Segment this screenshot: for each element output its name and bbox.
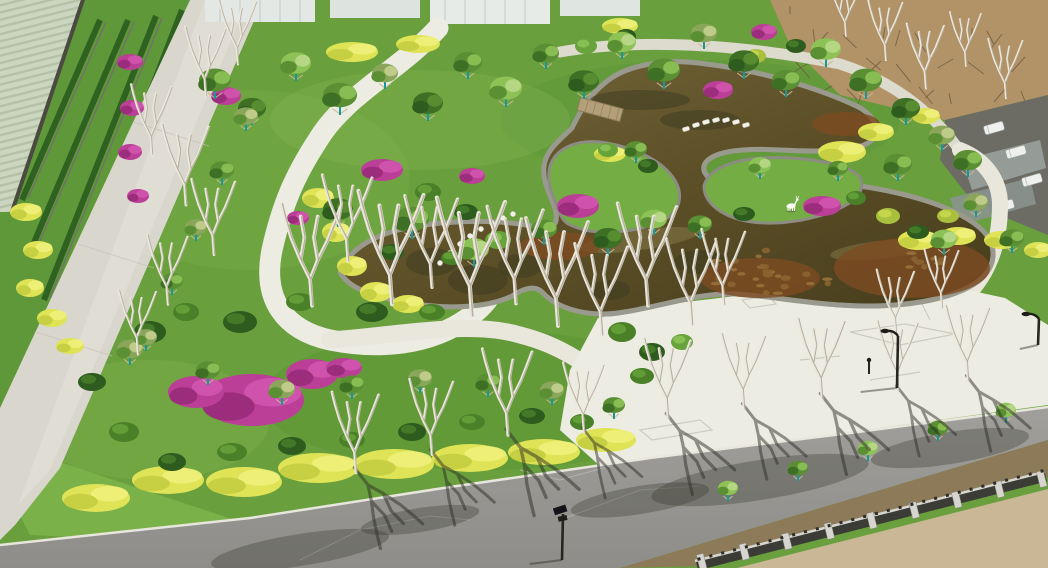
shrub-highlight: [848, 192, 859, 199]
tree-canopy: [198, 78, 216, 91]
tree-canopy: [975, 195, 987, 205]
scene-svg: [0, 0, 1048, 568]
building: [430, 0, 550, 24]
tree-canopy: [419, 371, 431, 381]
tree-canopy: [195, 368, 208, 378]
yellow-hedge-dark: [859, 129, 877, 139]
tree-canopy: [489, 86, 507, 99]
yellow-hedge-dark: [17, 285, 31, 295]
tree-canopy: [453, 60, 468, 72]
tree-canopy: [928, 133, 942, 144]
yellow-hedge-dark: [338, 263, 353, 274]
tree-canopy: [963, 200, 976, 210]
tree-canopy: [728, 59, 745, 72]
tree-canopy: [699, 217, 711, 227]
magenta-flower-bed-dark: [288, 216, 299, 224]
tree-canopy: [339, 382, 352, 392]
lily-pad: [780, 284, 788, 290]
lily-pad: [914, 259, 924, 265]
tree-canopy: [532, 51, 546, 62]
shrub-highlight: [600, 144, 611, 151]
tree-canopy: [663, 61, 679, 74]
tree-canopy: [505, 79, 521, 92]
tree-canopy: [703, 26, 716, 36]
shrub-highlight: [735, 208, 747, 215]
lily-pad: [711, 282, 721, 286]
magenta-flower-bed-dark: [704, 87, 719, 97]
lamp-pole: [897, 336, 898, 388]
shrub-highlight: [81, 375, 96, 384]
tree-canopy: [551, 383, 563, 393]
tree-canopy: [785, 72, 799, 83]
shrub-highlight: [226, 313, 245, 324]
tree-canopy: [116, 347, 130, 358]
tree-canopy: [891, 106, 906, 118]
tree-canopy: [281, 382, 294, 392]
yellow-hedge-dark: [208, 478, 246, 495]
yellow-hedge-dark: [356, 460, 396, 477]
tree-canopy: [838, 163, 848, 171]
lily-pad: [762, 248, 770, 254]
aerial-park-photo: [0, 0, 1048, 568]
magenta-flower-bed-dark: [121, 106, 133, 115]
shrub-highlight: [788, 40, 799, 47]
lily-pad: [921, 264, 927, 270]
shrub-highlight: [462, 416, 476, 424]
tree-canopy: [268, 387, 282, 398]
tree-canopy: [602, 403, 614, 412]
shrub-highlight: [401, 425, 416, 434]
tree-canopy: [209, 168, 222, 178]
yellow-hedge-dark: [327, 49, 353, 60]
lily-pad: [753, 277, 759, 281]
yellow-hedge-dark: [397, 41, 419, 51]
yellow-hedge-dark: [303, 195, 319, 206]
tree-canopy: [245, 109, 257, 119]
tree-canopy: [207, 363, 219, 373]
yellow-hedge-dark: [64, 494, 98, 509]
shrub-highlight: [422, 306, 436, 314]
tree-canopy: [771, 78, 786, 90]
tree-canopy: [624, 147, 636, 156]
tree-canopy: [221, 163, 233, 173]
shrub-highlight: [939, 210, 951, 217]
lily-pad: [906, 251, 916, 255]
shrub-highlight: [281, 439, 296, 448]
lamp-pole: [1038, 319, 1039, 345]
tree-canopy: [583, 73, 598, 85]
tree-canopy: [728, 483, 738, 491]
tree-canopy: [953, 158, 968, 170]
shrub-highlight: [673, 336, 685, 344]
tree-canopy: [687, 222, 700, 232]
shrub-highlight: [289, 295, 304, 304]
yellow-hedge-dark: [24, 247, 39, 257]
yellow-hedge-dark: [361, 289, 377, 300]
tree-canopy: [621, 34, 635, 45]
tree-canopy: [1011, 231, 1023, 241]
lily-pad: [756, 284, 764, 288]
shrub-highlight: [640, 160, 651, 167]
lily-pad: [762, 269, 772, 275]
tree-canopy: [607, 230, 621, 241]
tree-canopy: [941, 128, 954, 138]
tree-canopy: [690, 31, 704, 42]
shrub-highlight: [418, 185, 432, 194]
magenta-flower-bed-dark: [118, 60, 131, 69]
lily-pad: [737, 272, 745, 276]
tree-canopy: [593, 236, 608, 248]
building: [330, 0, 420, 18]
shrub-highlight: [909, 226, 921, 233]
tree-canopy: [865, 71, 881, 84]
tree-canopy: [184, 225, 196, 234]
shrub-highlight: [359, 304, 377, 314]
tree-canopy: [798, 463, 808, 471]
tree-canopy: [999, 236, 1012, 246]
tree-canopy: [545, 46, 558, 56]
magenta-flower-bed-dark: [327, 365, 345, 376]
lily-pad: [759, 264, 769, 270]
yellow-hedge-dark: [57, 344, 71, 353]
magenta-flower-bed-dark: [119, 150, 131, 159]
tree-canopy: [233, 114, 246, 124]
lily-pad: [822, 277, 832, 281]
lily-pad: [775, 274, 781, 278]
tree-canopy: [171, 275, 182, 284]
tree-canopy: [280, 61, 297, 74]
tree-canopy: [788, 467, 799, 475]
yellow-hedge-dark: [280, 464, 320, 481]
tree-canopy: [568, 79, 585, 92]
lamp-head: [867, 358, 871, 362]
tree-canopy: [384, 66, 397, 76]
lily-pad: [763, 290, 769, 296]
tree-canopy: [825, 41, 840, 53]
shrub-highlight: [632, 370, 645, 378]
yellow-hedge-dark: [1025, 248, 1039, 257]
tree-canopy: [412, 101, 429, 114]
lily-pad: [773, 291, 783, 295]
tree-canopy: [214, 71, 230, 84]
tree-canopy: [759, 159, 770, 168]
tree-canopy: [849, 78, 867, 91]
tree-canopy: [967, 152, 981, 163]
tree-canopy: [897, 156, 911, 167]
lily-pad: [727, 281, 735, 287]
tree-canopy: [743, 53, 758, 65]
yellow-hedge-dark: [819, 149, 843, 161]
tree-canopy: [647, 68, 665, 81]
shrub-highlight: [577, 40, 589, 48]
yellow-hedge-dark: [38, 315, 53, 325]
tree-canopy: [467, 54, 481, 65]
tree-canopy: [351, 377, 363, 387]
yellow-hedge-dark: [603, 24, 621, 33]
yellow-hedge-dark: [134, 476, 170, 491]
shrub-highlight: [112, 424, 129, 434]
tree-canopy: [828, 167, 839, 175]
garden-stepping-stone: [437, 260, 442, 265]
tree-canopy: [295, 55, 310, 67]
lily-pad: [825, 281, 831, 287]
deer-head: [796, 198, 799, 201]
garden-stepping-stone: [478, 226, 483, 231]
magenta-flower-bed-dark: [558, 202, 579, 215]
lamp-head: [1022, 312, 1031, 316]
tree-canopy: [475, 380, 488, 390]
magenta-flower-bed-dark: [128, 194, 139, 202]
magenta-flower-bed-dark: [169, 387, 197, 405]
tree-canopy: [613, 399, 624, 408]
tree-canopy: [943, 232, 956, 242]
shrub-highlight: [220, 445, 237, 454]
tree-canopy: [339, 86, 356, 100]
building: [560, 0, 640, 16]
lily-pad: [806, 282, 814, 286]
lily-pad: [731, 268, 737, 272]
tree-canopy: [539, 388, 552, 398]
tree-canopy: [607, 40, 622, 52]
magenta-flower-bed-dark: [804, 203, 823, 214]
tree-canopy: [371, 71, 385, 82]
shrub-highlight: [522, 410, 536, 418]
tree-canopy: [427, 95, 442, 107]
tree-canopy: [322, 93, 341, 107]
magenta-flower-bed-dark: [752, 30, 765, 39]
lily-pad: [802, 271, 810, 277]
shrub-highlight: [176, 305, 190, 314]
tree-canopy: [905, 100, 919, 111]
lily-pad: [780, 275, 790, 281]
lily-pad: [755, 255, 761, 259]
tree-canopy: [145, 331, 156, 340]
magenta-flower-bed-dark: [460, 174, 473, 183]
yellow-hedge-dark: [393, 301, 409, 311]
tree-canopy: [883, 162, 898, 174]
tree-canopy: [635, 143, 646, 152]
shrub-highlight: [878, 210, 891, 218]
garden-stepping-stone: [510, 211, 515, 216]
lamp-head: [881, 329, 890, 333]
tree-canopy: [718, 487, 729, 495]
tree-canopy: [748, 163, 760, 172]
shrub-highlight: [611, 324, 626, 334]
yellow-hedge-dark: [11, 209, 27, 219]
shrub-highlight: [382, 246, 395, 254]
lily-pad: [905, 265, 913, 269]
garden-stepping-stone: [467, 233, 472, 238]
tree-canopy: [930, 237, 944, 248]
tree-canopy: [810, 47, 827, 60]
shrub-highlight: [161, 455, 176, 464]
